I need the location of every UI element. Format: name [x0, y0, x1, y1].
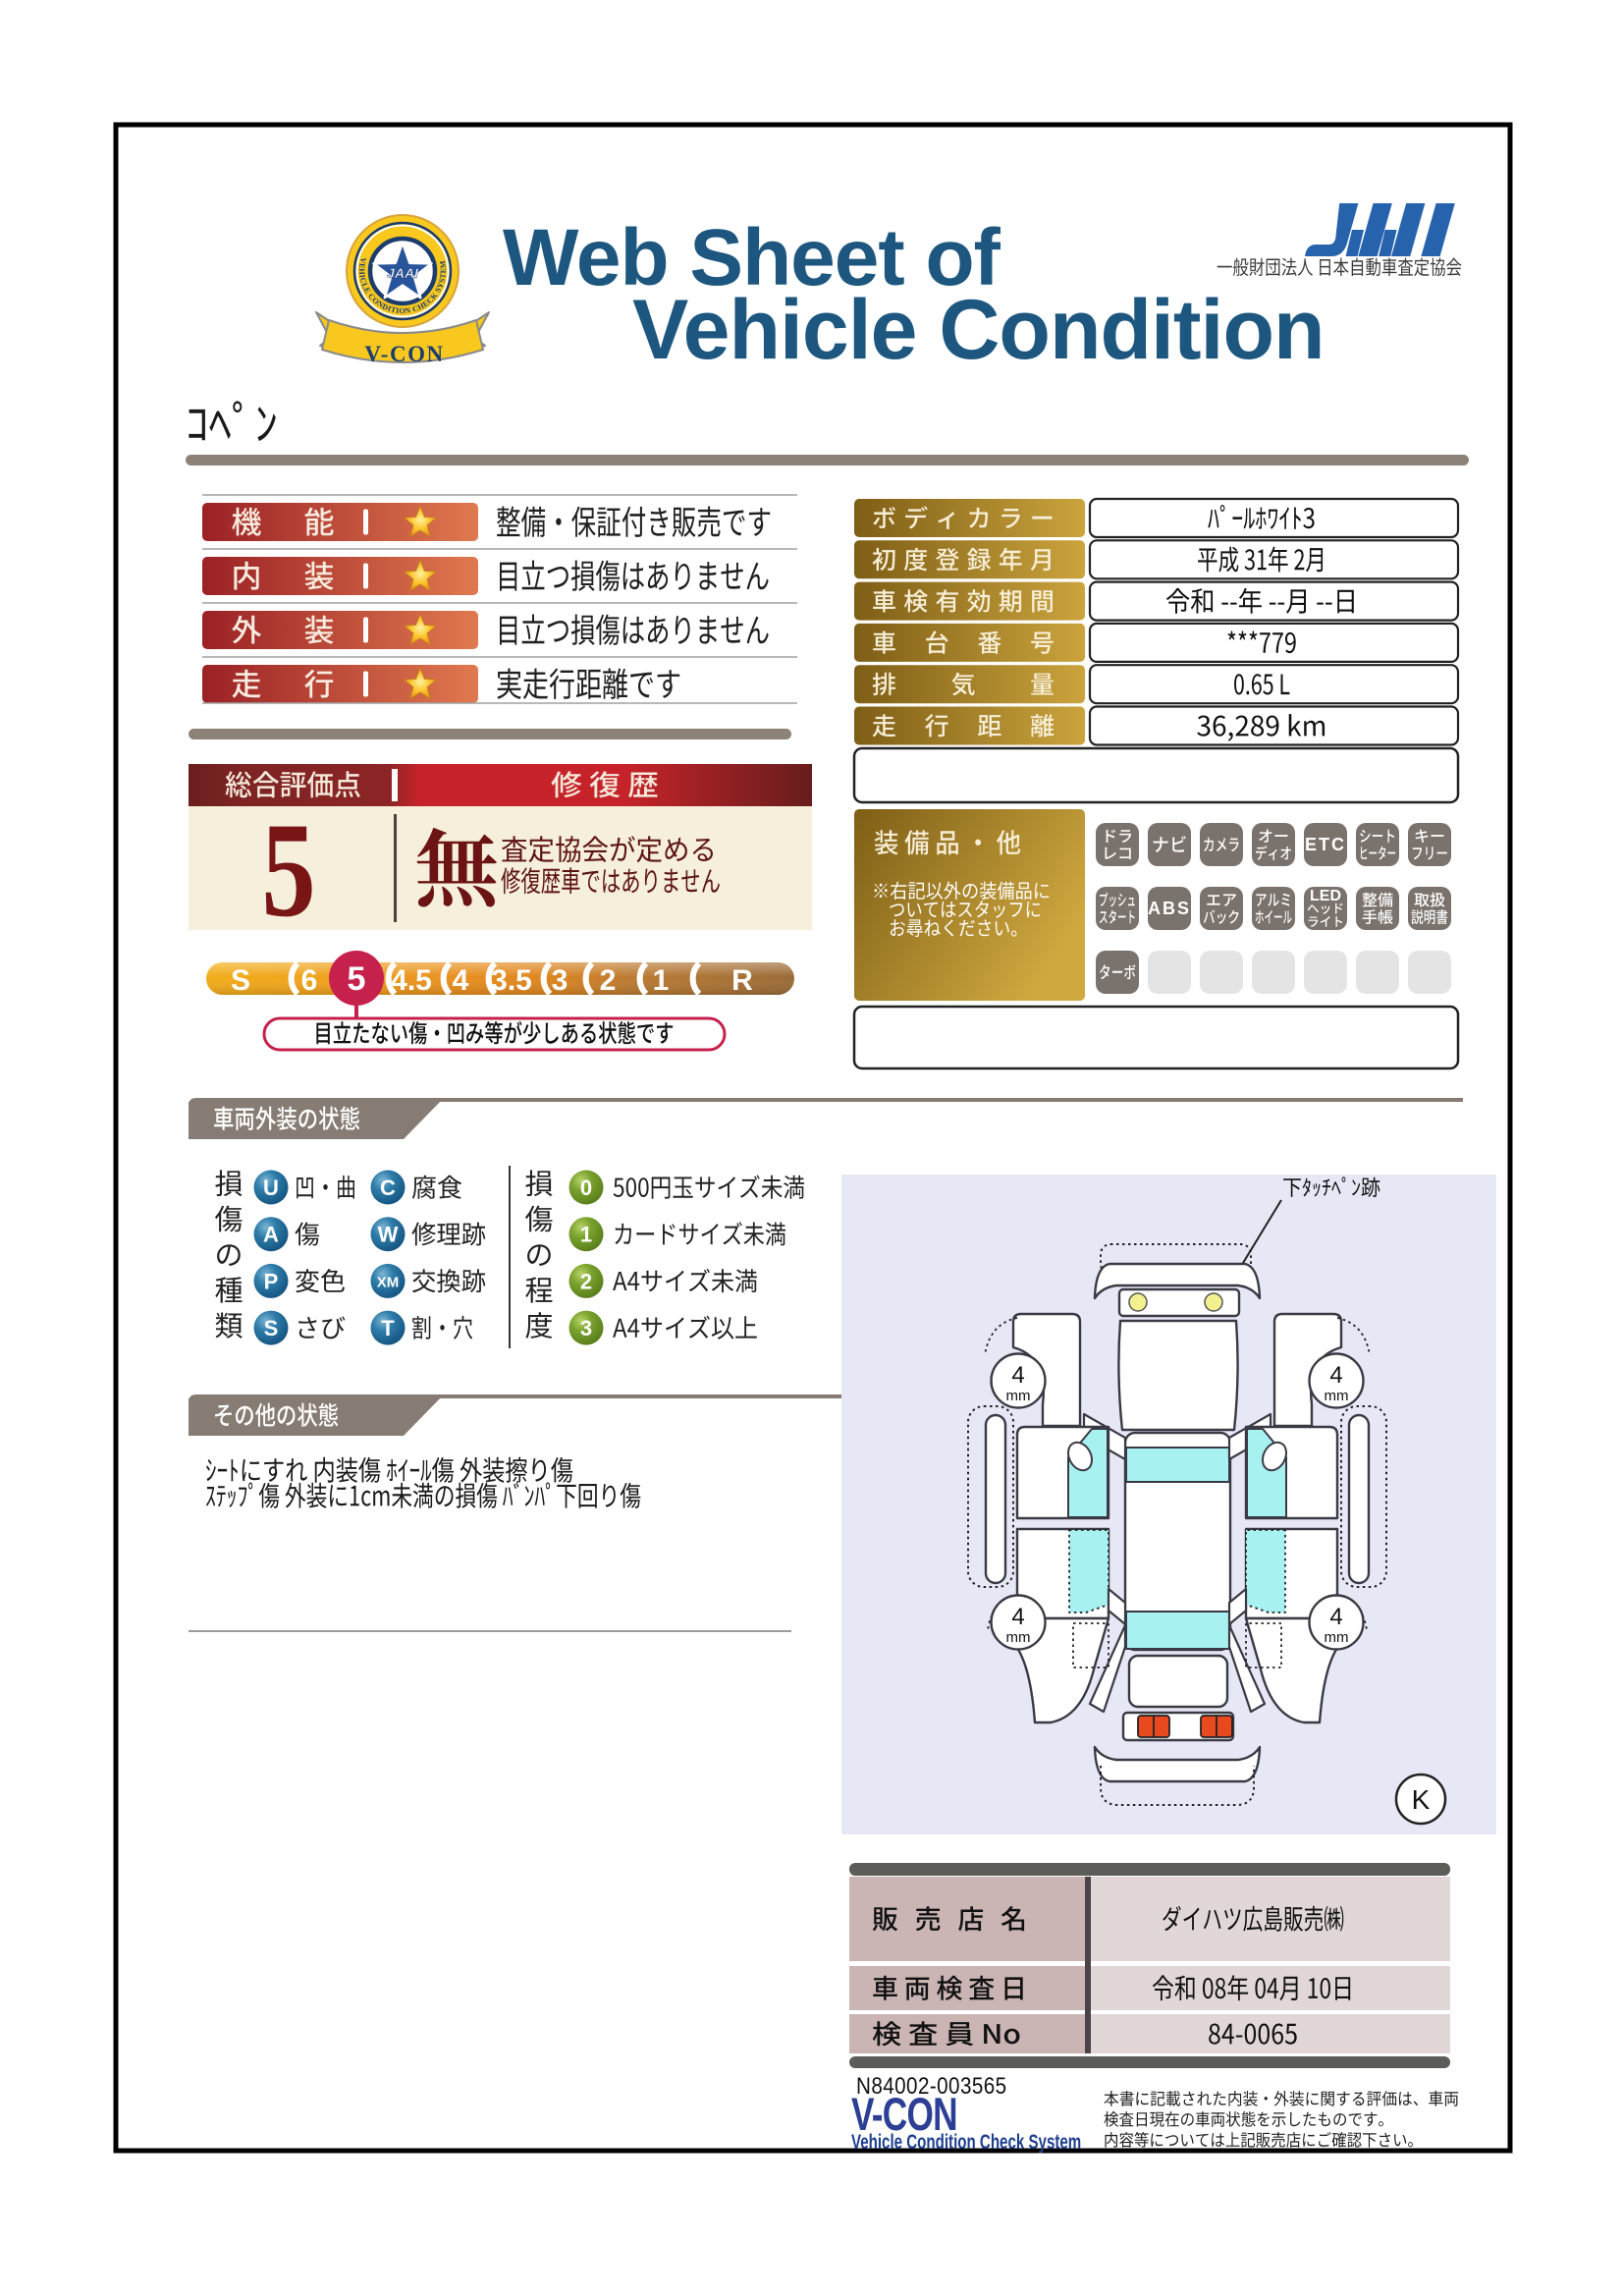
svg-text:C: C: [380, 1175, 396, 1200]
svg-text:4: 4: [1011, 1604, 1024, 1630]
svg-text:S: S: [231, 964, 250, 997]
svg-text:3.5: 3.5: [491, 964, 532, 997]
svg-text:JAAI: JAAI: [387, 265, 419, 281]
svg-text:R: R: [731, 964, 753, 997]
svg-text:mm: mm: [1006, 1388, 1031, 1404]
svg-text:1: 1: [580, 1223, 592, 1247]
svg-text:A: A: [263, 1223, 279, 1247]
svg-text:mm: mm: [1006, 1629, 1031, 1646]
svg-text:V-CON: V-CON: [364, 342, 444, 366]
svg-text:XM: XM: [377, 1274, 400, 1290]
svg-text:mm: mm: [1325, 1388, 1349, 1404]
svg-text:6: 6: [301, 964, 318, 997]
svg-text:P: P: [264, 1269, 279, 1293]
svg-text:S: S: [264, 1316, 279, 1340]
svg-text:4: 4: [453, 964, 469, 997]
svg-text:2: 2: [600, 964, 617, 997]
svg-text:U: U: [263, 1175, 279, 1200]
svg-text:W: W: [378, 1223, 399, 1247]
svg-text:1: 1: [653, 964, 670, 997]
svg-text:3: 3: [580, 1316, 592, 1340]
svg-text:0: 0: [580, 1175, 592, 1200]
svg-text:K: K: [1412, 1784, 1431, 1815]
svg-text:4: 4: [1329, 1604, 1342, 1630]
svg-text:4: 4: [1329, 1362, 1342, 1389]
svg-text:4.5: 4.5: [391, 964, 432, 997]
svg-text:mm: mm: [1325, 1629, 1349, 1646]
svg-text:2: 2: [580, 1269, 592, 1293]
svg-text:5: 5: [261, 796, 315, 946]
svg-text:ABS: ABS: [1148, 899, 1191, 918]
svg-text:Vehicle Condition Check System: Vehicle Condition Check System: [851, 2129, 1081, 2153]
svg-text:ETC: ETC: [1305, 835, 1346, 854]
svg-text:3: 3: [552, 964, 568, 997]
svg-text:5: 5: [348, 960, 366, 998]
svg-text:T: T: [381, 1316, 395, 1340]
svg-text:Vehicle Condition: Vehicle Condition: [632, 283, 1325, 377]
svg-text:4: 4: [1011, 1362, 1024, 1389]
svg-text:LED: LED: [1310, 888, 1341, 904]
